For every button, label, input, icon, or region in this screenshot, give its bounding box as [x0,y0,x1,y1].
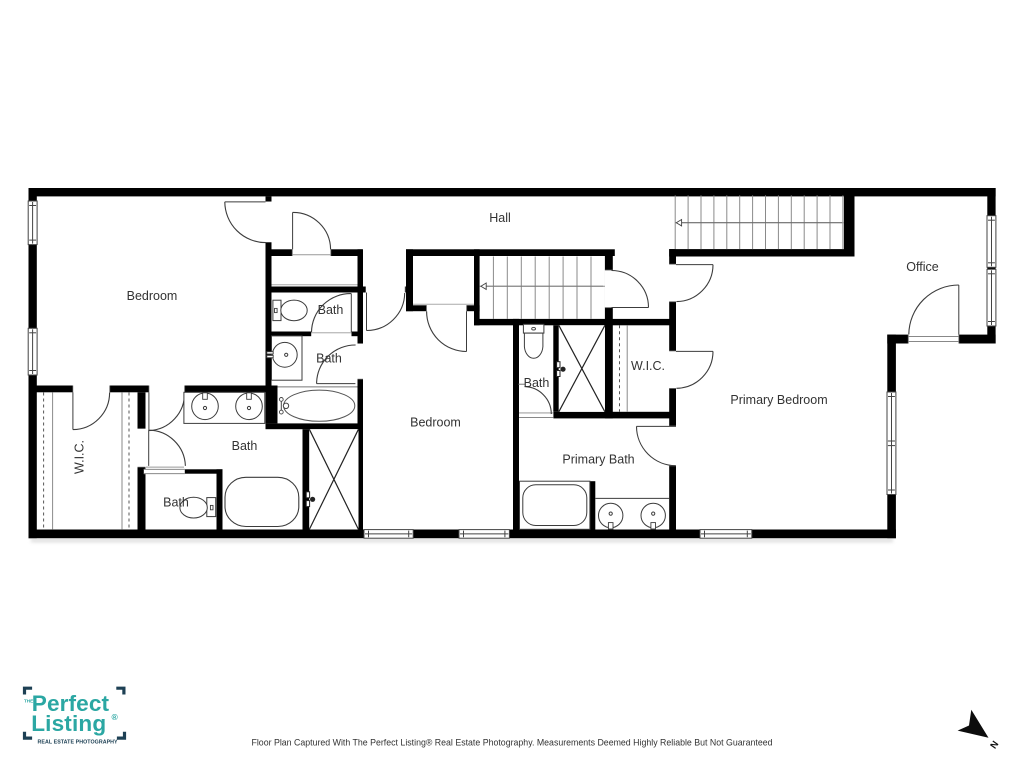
svg-text:Office: Office [906,260,938,274]
svg-text:Bath: Bath [316,352,342,366]
svg-text:Bedroom: Bedroom [127,289,178,303]
svg-text:W.I.C.: W.I.C. [73,440,87,474]
svg-text:REAL ESTATE PHOTOGRAPHY: REAL ESTATE PHOTOGRAPHY [38,740,119,746]
svg-text:Bath: Bath [232,439,258,453]
svg-text:Listing: Listing [31,711,106,736]
svg-text:Bath: Bath [524,376,550,390]
svg-text:®: ® [112,712,119,722]
svg-text:W.I.C.: W.I.C. [631,359,665,373]
svg-text:Floor Plan Captured With The P: Floor Plan Captured With The Perfect Lis… [251,738,772,748]
svg-text:Primary Bath: Primary Bath [562,453,634,467]
svg-text:Bath: Bath [163,496,189,510]
svg-text:Bath: Bath [318,303,344,317]
svg-text:Hall: Hall [489,211,511,225]
svg-text:Primary Bedroom: Primary Bedroom [730,393,827,407]
svg-text:Bedroom: Bedroom [410,416,461,430]
